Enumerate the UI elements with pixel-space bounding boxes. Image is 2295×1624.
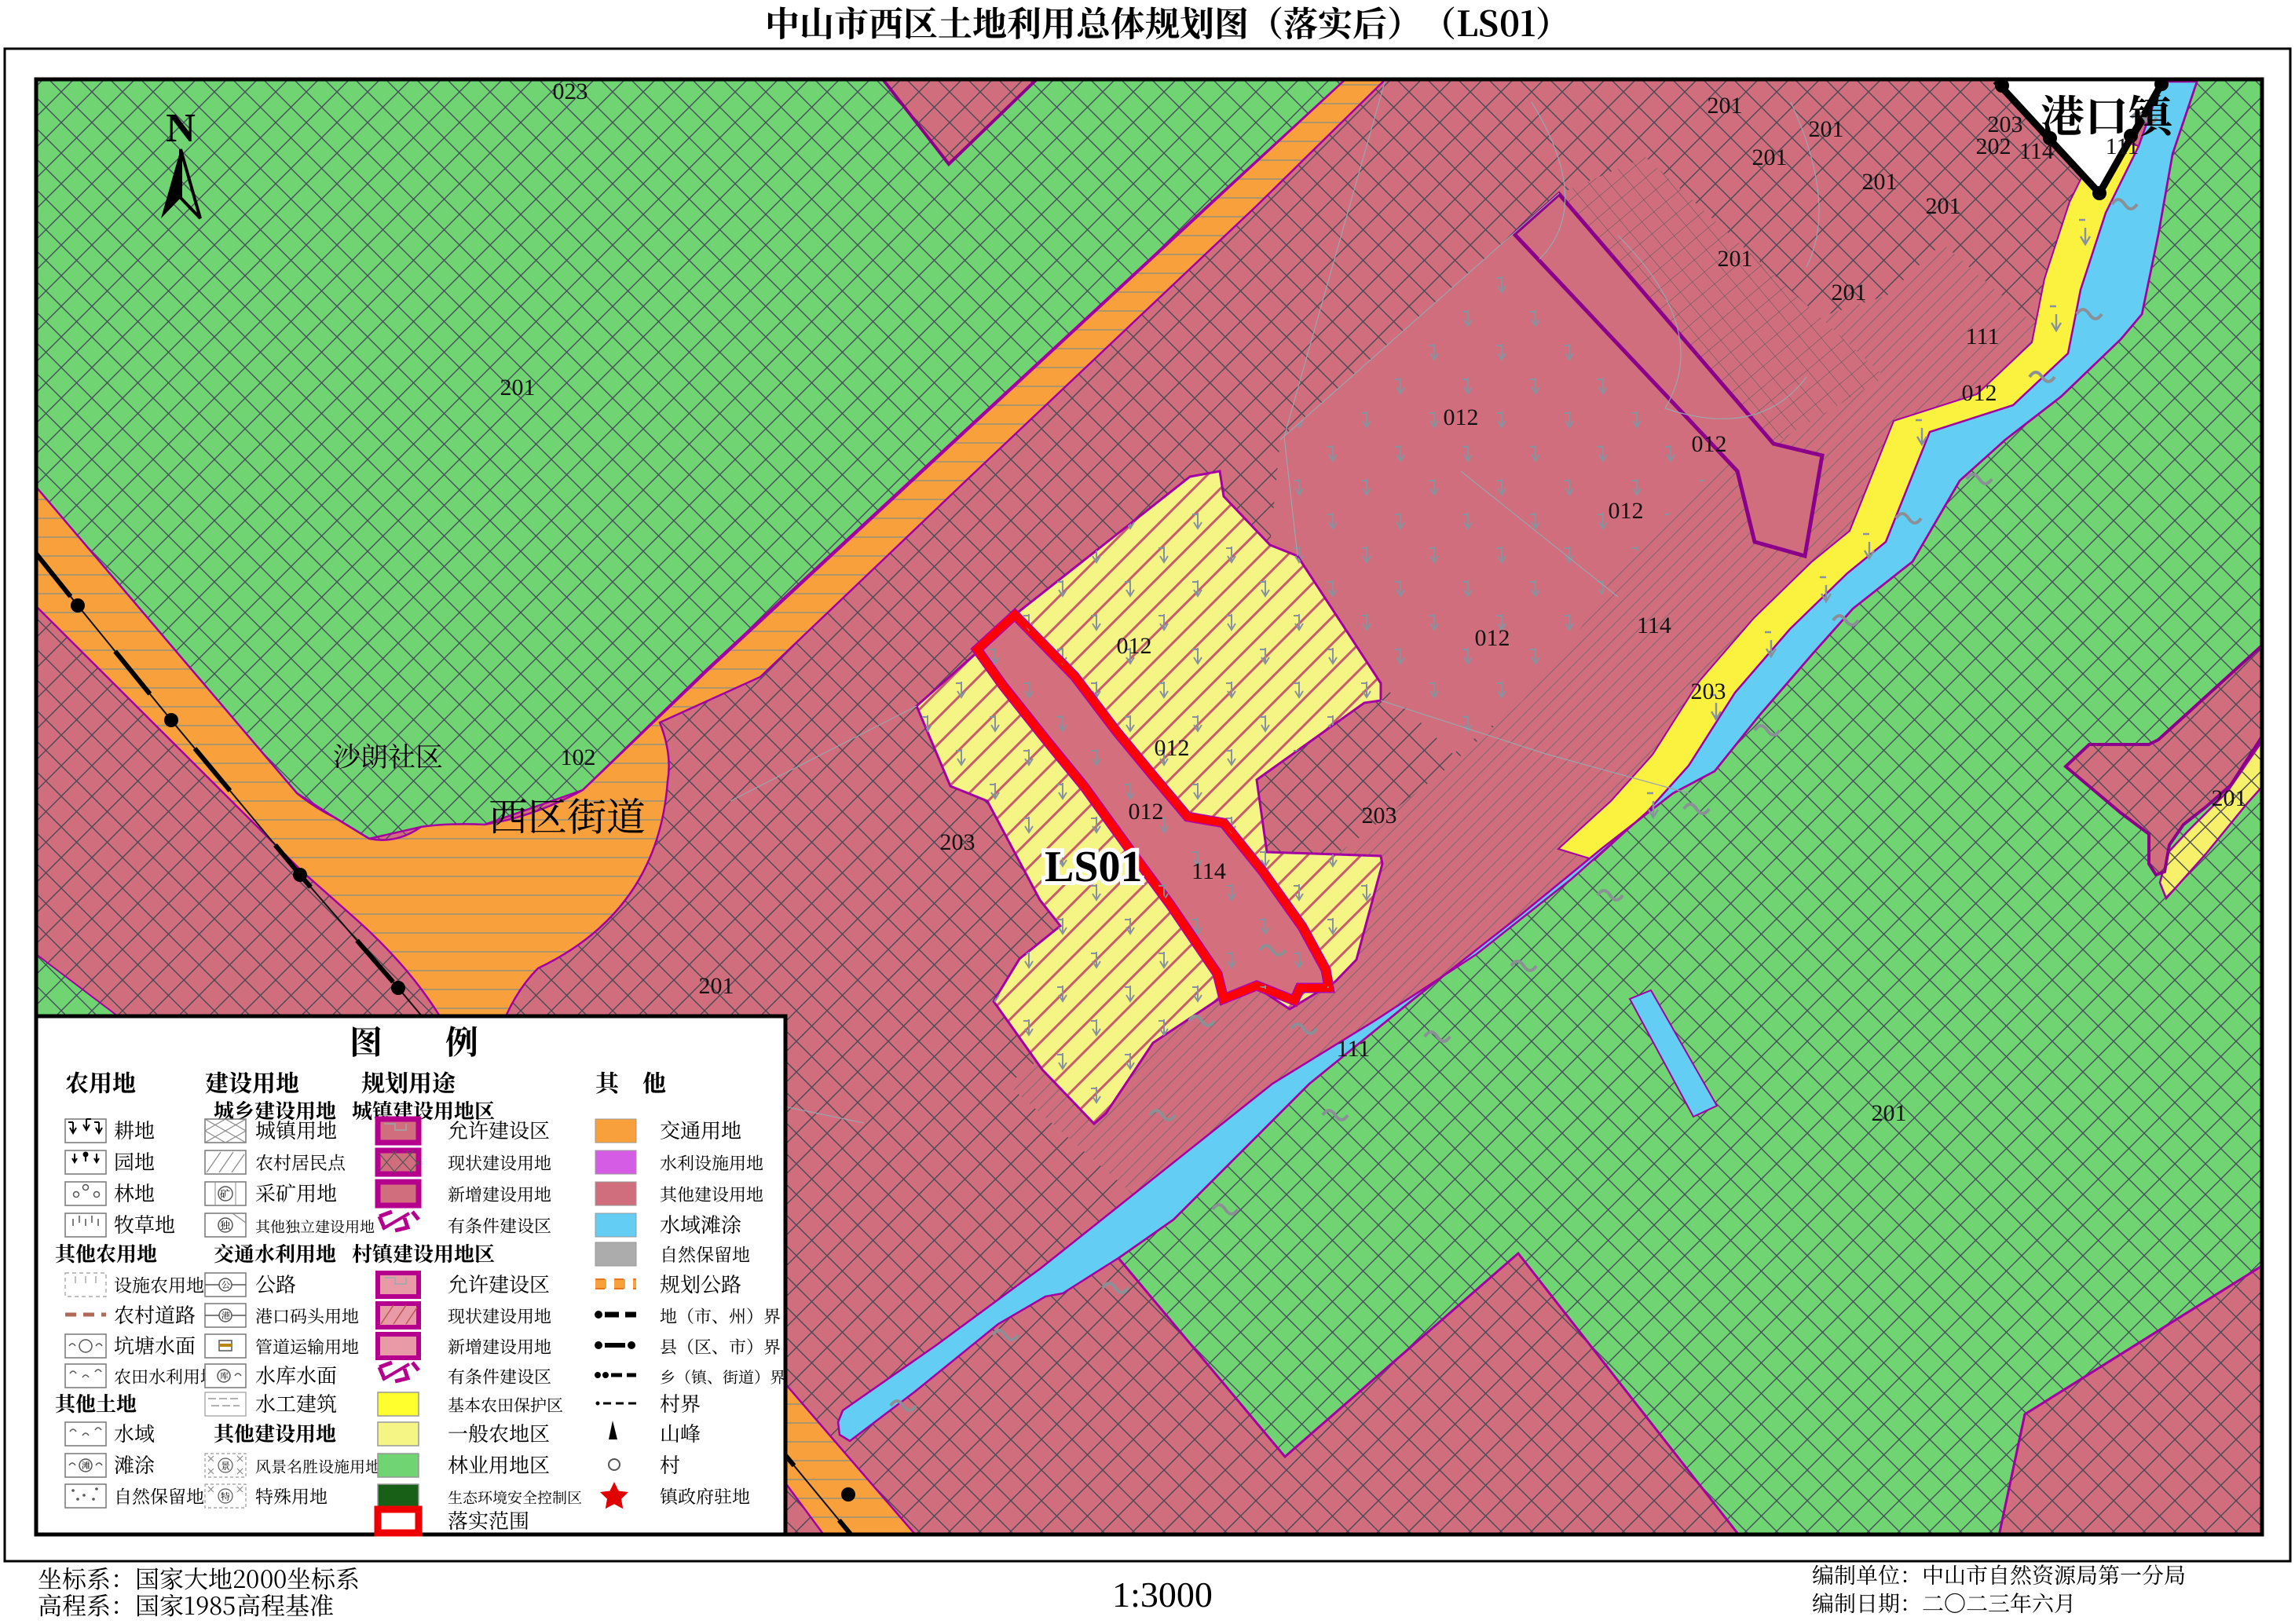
svg-text:201: 201 (1752, 144, 1788, 170)
svg-text:LS01: LS01 (1045, 843, 1143, 891)
svg-text:202: 202 (1976, 134, 2011, 159)
svg-text:201: 201 (1862, 169, 1898, 195)
svg-text:012: 012 (1117, 633, 1152, 659)
svg-text:201: 201 (2212, 785, 2247, 811)
svg-text:012: 012 (1692, 431, 1727, 457)
svg-text:201: 201 (1809, 116, 1844, 142)
svg-text:111: 111 (2106, 134, 2139, 159)
svg-text:114: 114 (1191, 858, 1226, 884)
svg-text:201: 201 (1708, 93, 1743, 119)
svg-text:203: 203 (1362, 803, 1397, 828)
svg-text:114: 114 (2019, 138, 2054, 164)
svg-text:203: 203 (940, 829, 975, 855)
svg-text:102: 102 (561, 744, 596, 770)
svg-text:201: 201 (500, 375, 536, 401)
svg-text:023: 023 (553, 79, 588, 104)
svg-text:111: 111 (1337, 1036, 1371, 1062)
svg-text:201: 201 (1832, 280, 1867, 305)
svg-text:114: 114 (1637, 613, 1671, 638)
svg-text:012: 012 (1962, 380, 1997, 406)
svg-text:111: 111 (1966, 324, 2000, 349)
svg-text:012: 012 (1129, 799, 1164, 825)
svg-text:012: 012 (1155, 735, 1190, 761)
svg-text:201: 201 (1872, 1100, 1907, 1126)
svg-text:1:3000: 1:3000 (1112, 1575, 1213, 1615)
svg-text:012: 012 (1444, 404, 1479, 430)
svg-text:201: 201 (1926, 193, 1961, 219)
svg-text:N: N (166, 106, 196, 151)
svg-text:201: 201 (699, 973, 734, 999)
svg-text:012: 012 (1475, 625, 1510, 651)
svg-text:203: 203 (1691, 678, 1726, 704)
svg-text:201: 201 (1718, 246, 1753, 272)
svg-text:012: 012 (1609, 498, 1644, 524)
